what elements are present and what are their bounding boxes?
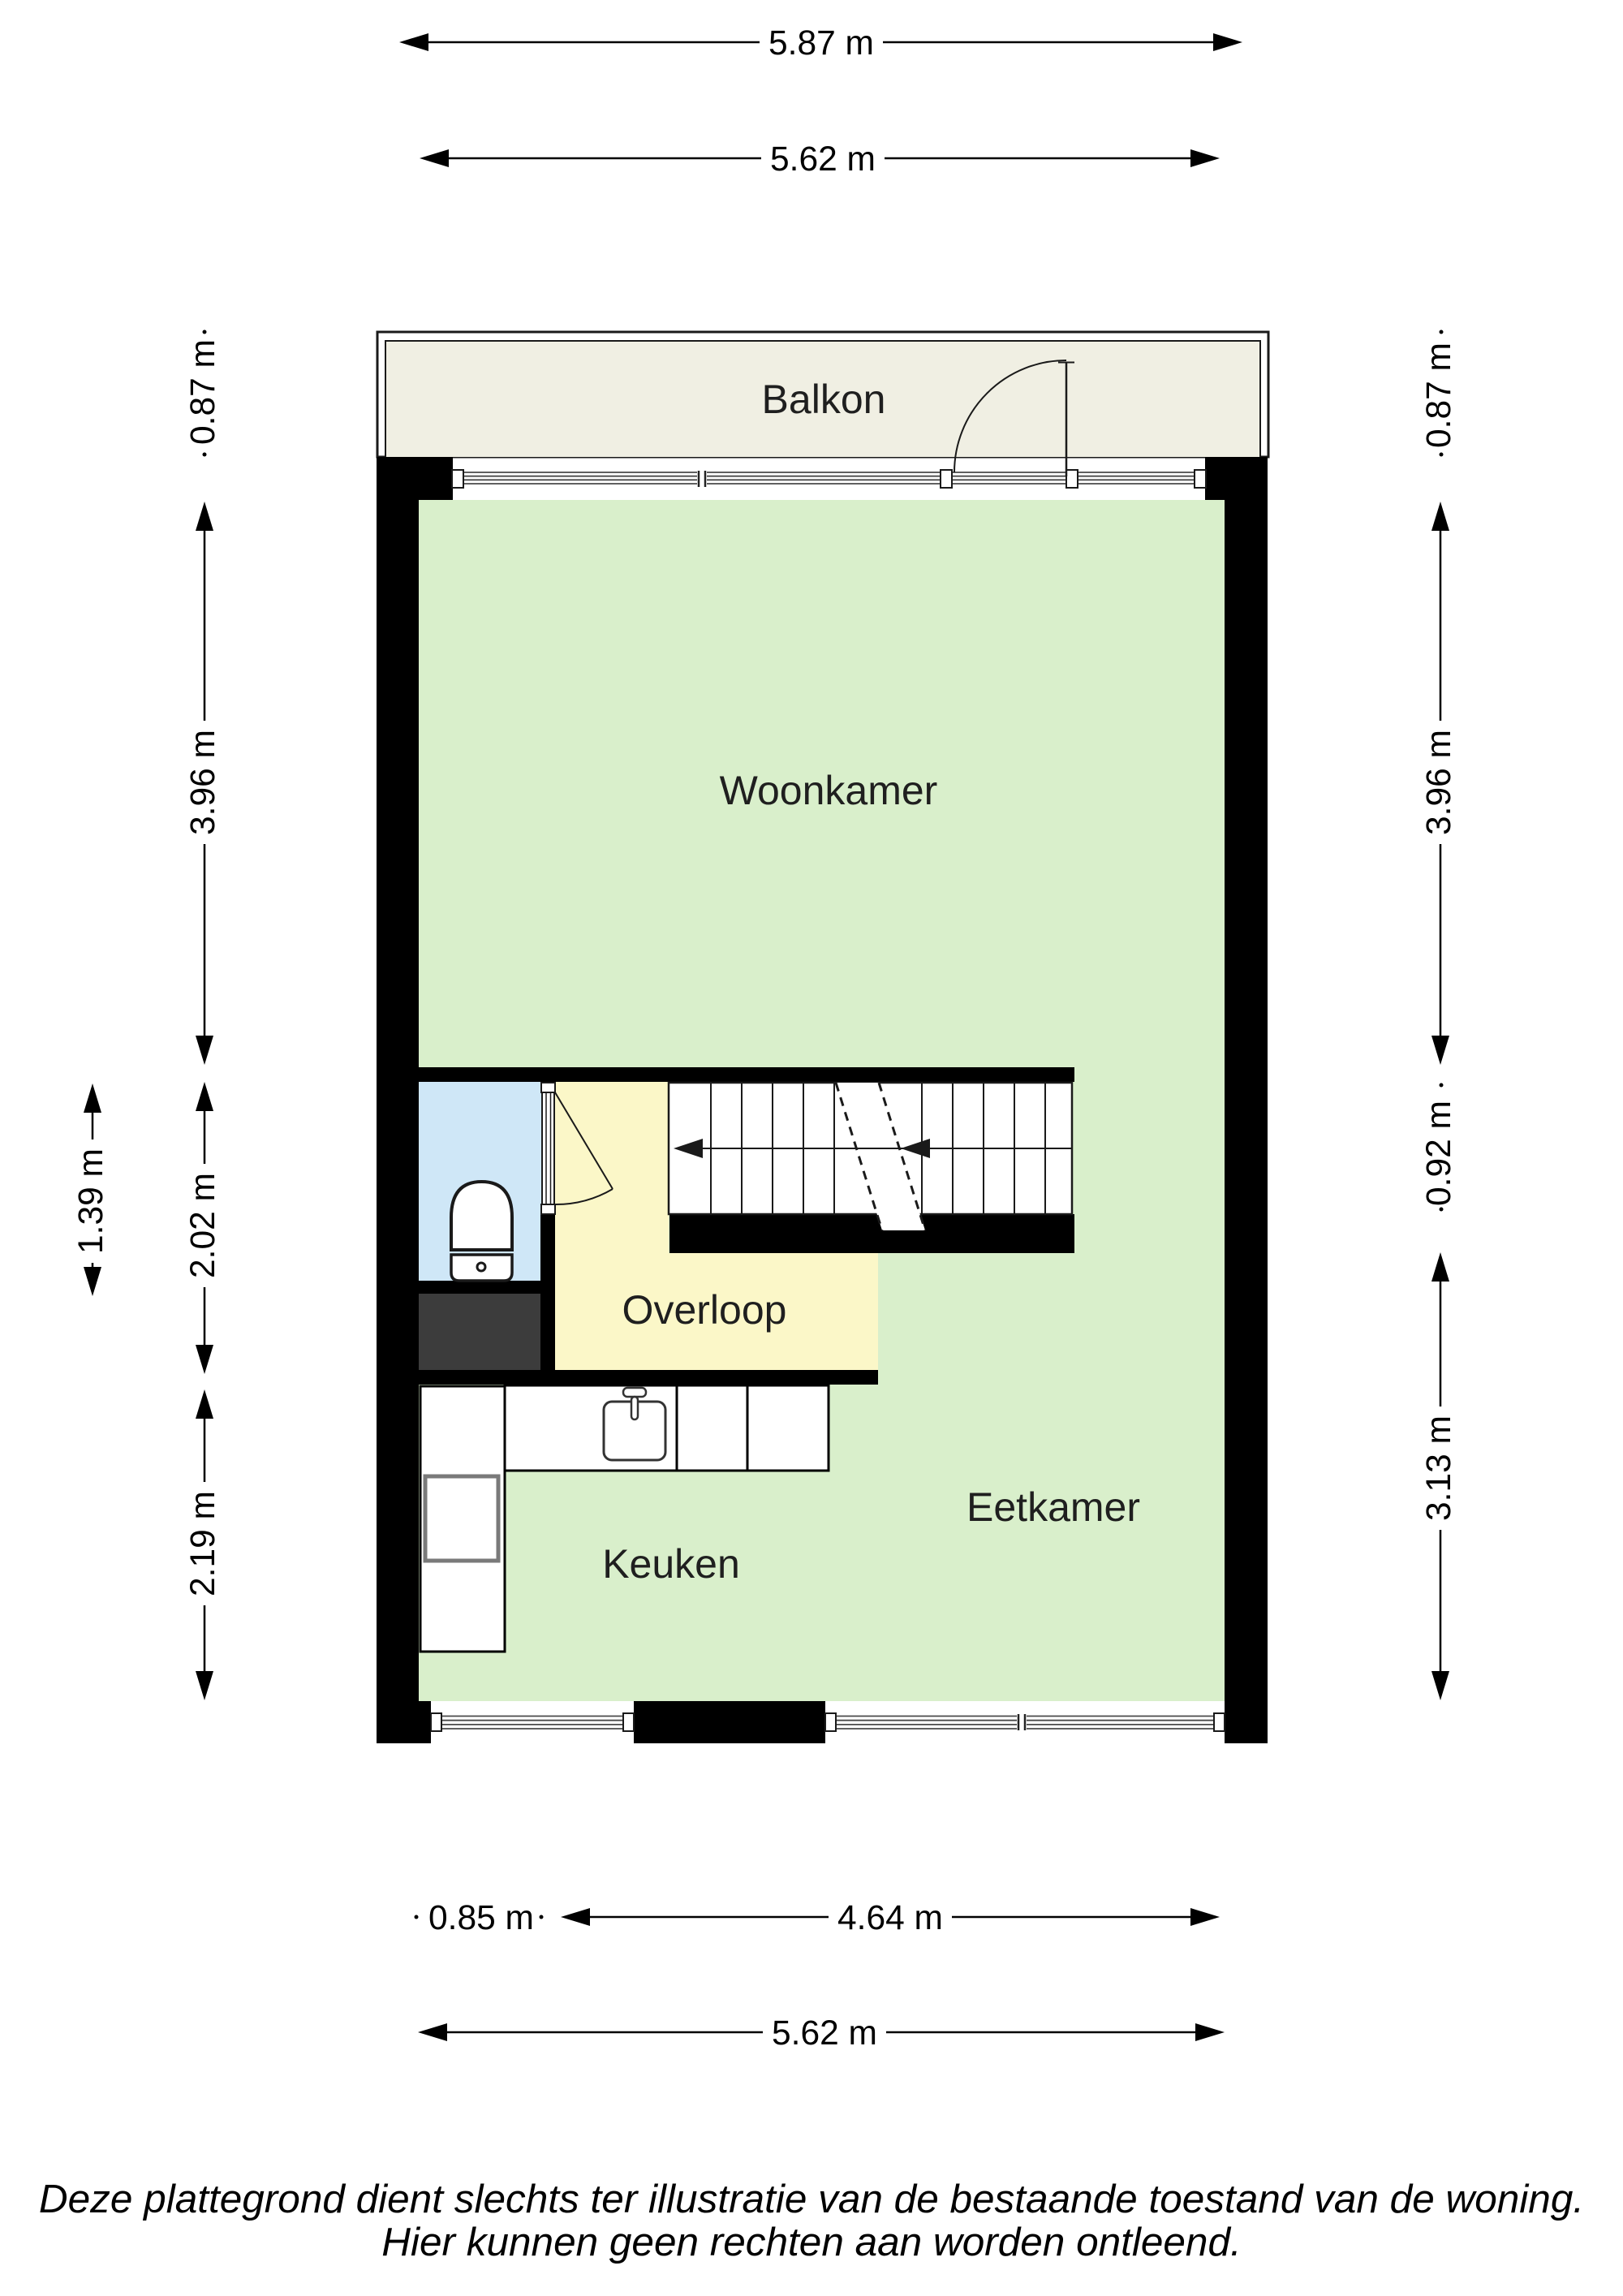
svg-text:Overloop: Overloop [622, 1287, 787, 1333]
svg-text:3.96 m: 3.96 m [184, 730, 222, 835]
svg-text:0.92 m: 0.92 m [1420, 1101, 1458, 1206]
svg-text:Eetkamer: Eetkamer [966, 1484, 1140, 1530]
svg-text:2.02 m: 2.02 m [184, 1173, 222, 1278]
svg-text:2.19 m: 2.19 m [184, 1491, 222, 1596]
svg-text:0.85 m: 0.85 m [428, 1899, 534, 1937]
svg-text:Woonkamer: Woonkamer [720, 768, 938, 813]
svg-text:3.96 m: 3.96 m [1420, 730, 1458, 835]
svg-text:5.62 m: 5.62 m [770, 140, 876, 179]
svg-text:3.13 m: 3.13 m [1420, 1415, 1458, 1521]
svg-text:0.87 m: 0.87 m [1420, 342, 1458, 448]
svg-text:Hier kunnen geen rechten aan w: Hier kunnen geen rechten aan worden ontl… [381, 2220, 1242, 2264]
svg-text:5.62 m: 5.62 m [772, 2014, 877, 2053]
svg-text:Balkon: Balkon [762, 377, 886, 422]
svg-text:0.87 m: 0.87 m [184, 339, 222, 445]
svg-text:Keuken: Keuken [602, 1541, 740, 1587]
svg-text:1.39 m: 1.39 m [72, 1148, 110, 1254]
svg-text:4.64 m: 4.64 m [837, 1899, 943, 1937]
svg-text:5.87 m: 5.87 m [768, 24, 874, 62]
svg-text:Deze plattegrond dient slechts: Deze plattegrond dient slechts ter illus… [39, 2177, 1584, 2221]
